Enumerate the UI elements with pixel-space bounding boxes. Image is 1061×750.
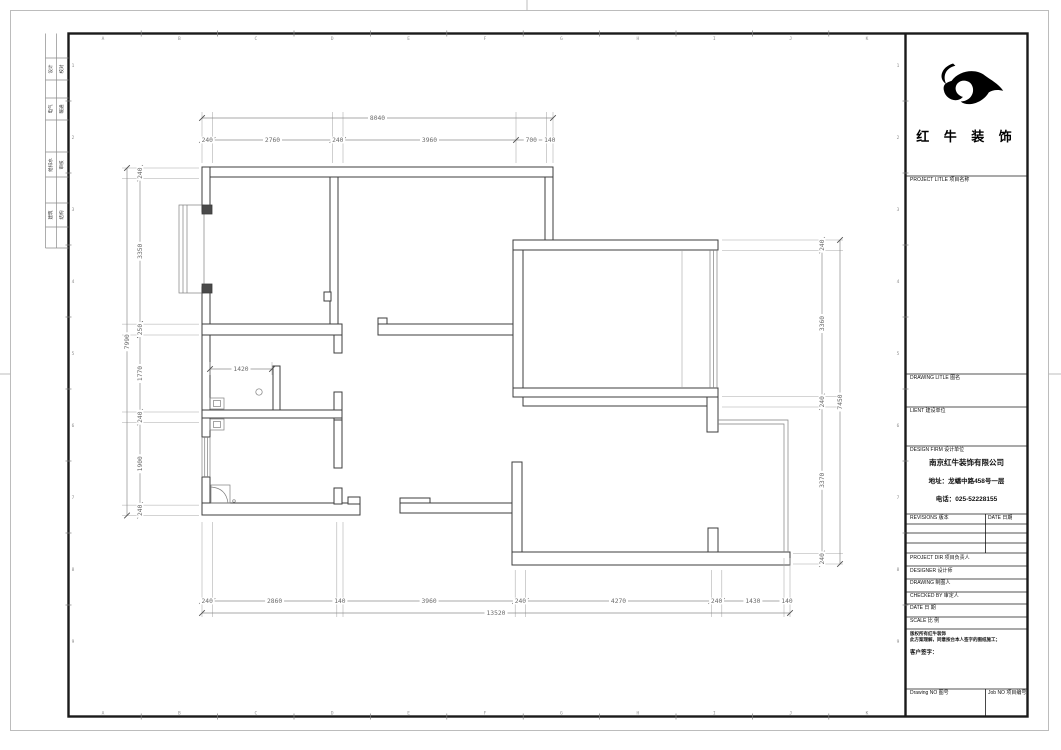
wall-hall-top xyxy=(378,324,513,335)
wall-br-room-top xyxy=(523,397,707,406)
grid-ref-letter: E xyxy=(407,36,410,42)
dim-label: 240 xyxy=(202,137,214,144)
grid-ref-number: 7 xyxy=(72,495,75,501)
dim-label: 8040 xyxy=(370,115,385,122)
grid-ref-letter: I xyxy=(713,711,716,717)
grid-ref-letter: H xyxy=(636,36,639,42)
floor-drain xyxy=(256,389,262,395)
checked-by-label: CHECKED BY 审定人 xyxy=(910,594,959,600)
dim-label: 250 xyxy=(137,324,144,336)
grid-ref-letter: B xyxy=(178,36,181,42)
wall-bath-stub xyxy=(273,366,280,410)
wall-right-room-bottom xyxy=(513,388,718,397)
floor-plan xyxy=(179,167,790,565)
dim-label: 140 xyxy=(544,137,556,144)
wall-left-lower xyxy=(202,332,210,437)
grid-ref-number: 7 xyxy=(897,495,900,501)
grid-ref-letter: G xyxy=(560,36,563,42)
wall-step xyxy=(348,497,360,504)
wall-bath-right-a xyxy=(334,335,342,353)
wall-left-below-window xyxy=(202,477,210,505)
revisions-label: REVISIONS 版本 xyxy=(910,516,949,522)
signoff-check: 校对 xyxy=(58,61,66,77)
signoff-electric: 电气 xyxy=(47,101,55,117)
signoff-review: 审核 xyxy=(58,157,66,173)
scale-label: SCALE 比 例 xyxy=(910,619,939,625)
wall-connector-right xyxy=(545,177,553,240)
grid-ref-number: 1 xyxy=(897,63,900,69)
wall-room-divider xyxy=(330,177,338,335)
dim-label: 3960 xyxy=(422,598,437,605)
grid-ref-letter: B xyxy=(178,711,181,717)
sheet-outer-border xyxy=(0,0,1061,731)
dim-label: 240 xyxy=(711,598,723,605)
drawing-title-label: DRAWING LITLE 图名 xyxy=(910,376,960,382)
grid-ref-number: 5 xyxy=(72,351,75,357)
dim-label: 1430 xyxy=(745,598,760,605)
dim-label: 140 xyxy=(781,598,793,605)
grid-ref-number: 4 xyxy=(897,279,900,285)
dim-label: 140 xyxy=(334,598,346,605)
wall-kitchen-bottom xyxy=(202,503,360,515)
designer-label: DESIGNER 设计师 xyxy=(910,569,953,575)
grid-ref-number: 6 xyxy=(897,423,900,429)
signoff-design: 设计 xyxy=(47,61,55,77)
project-dir-label: PROJECT DIR 项目负责人 xyxy=(910,556,970,562)
grid-ref-letter: J xyxy=(789,36,792,42)
grid-ref-letter: D xyxy=(331,711,334,717)
wall-hall-vertical xyxy=(512,462,522,565)
dim-label: 240 xyxy=(819,396,826,408)
grid-ref-number: 9 xyxy=(72,639,75,645)
wall-entry xyxy=(400,503,513,513)
grid-ref-number: 4 xyxy=(72,279,75,285)
drawing-sheet: { "sheet": { "grid_letters": ["A","B","C… xyxy=(0,0,1061,750)
grid-ref-letter: F xyxy=(484,711,487,717)
window-left xyxy=(202,437,210,477)
customer-sign-label: 客户签字： xyxy=(910,650,938,656)
company-phone: 电话：025-52228155 xyxy=(905,496,1028,503)
wall-kitchen-right-a xyxy=(334,420,342,468)
grid-ref-letter: G xyxy=(560,711,563,717)
wall-notch-top xyxy=(707,397,718,432)
grid-ref-letter: K xyxy=(866,711,869,717)
dim-label: 1900 xyxy=(137,456,144,471)
dim-label: 4270 xyxy=(611,598,626,605)
signoff-plumbing: 给排水 xyxy=(47,157,55,173)
dim-label: 700 xyxy=(526,137,538,144)
dim-label: 240 xyxy=(137,411,144,423)
dim-label: 240 xyxy=(819,239,826,251)
grid-ref-letter: C xyxy=(254,36,257,42)
kitchen-sink xyxy=(211,485,235,503)
wall-bath-top xyxy=(202,324,342,335)
grid-ref-number: 2 xyxy=(897,135,900,141)
dim-label: 240 xyxy=(202,598,214,605)
grid-ref-letter: H xyxy=(636,711,639,717)
grid-ref-number: 9 xyxy=(897,639,900,645)
grid-ref-letter: C xyxy=(254,711,257,717)
dim-label: 7990 xyxy=(124,334,131,349)
dim-label: 1770 xyxy=(137,366,144,381)
dim-label: 3350 xyxy=(137,243,144,258)
grid-ref-letter: I xyxy=(713,36,716,42)
grid-ref-number: 1 xyxy=(72,63,75,69)
dim-label: 3360 xyxy=(819,316,826,331)
grid-ref-number: 8 xyxy=(72,567,75,573)
dim-label: 240 xyxy=(819,553,826,565)
grid-ref-number: 2 xyxy=(72,135,75,141)
sheet-linework: AABBCCDDEEFFGGHHIIJJKK112233445566778899 xyxy=(0,0,1061,750)
wall-top-right-room xyxy=(513,240,718,250)
signoff-arch: 建筑 xyxy=(47,207,55,223)
dim-label: 240 xyxy=(515,598,527,605)
dim-label: 13520 xyxy=(487,610,506,617)
copyright-line2: 此方案理解，同意按台本人签字的图纸施工； xyxy=(910,638,1000,643)
client-label: LIENT 建设单位 xyxy=(910,409,945,415)
date-label: DATE 日 期 xyxy=(910,606,936,612)
job-no-label: Job NO 项目编号 xyxy=(988,691,1026,697)
grid-ref-letter: A xyxy=(102,711,105,717)
grid-ref-letter: K xyxy=(866,36,869,42)
grid-ref-number: 5 xyxy=(897,351,900,357)
grid-ref-number: 8 xyxy=(897,567,900,573)
dim-label: 240 xyxy=(137,504,144,516)
grid-ref-letter: D xyxy=(331,36,334,42)
wall-kitchen-right-b xyxy=(334,488,342,504)
wall-small-step xyxy=(324,292,331,301)
revisions-date-label: DATE 日期 xyxy=(988,516,1012,522)
signoff-structure: 结构 xyxy=(58,207,66,223)
company-address: 地址：龙蟠中路458号一层 xyxy=(905,478,1028,485)
dim-label: 2860 xyxy=(267,598,282,605)
grid-ref-number: 3 xyxy=(897,207,900,213)
drawing-no-label: Drawing NO 图号 xyxy=(910,691,949,697)
dim-label: 2760 xyxy=(265,137,280,144)
dim-label: 240 xyxy=(332,137,344,144)
project-title-label: PROJECT LITLE 项目名称 xyxy=(910,178,969,184)
window-right-room xyxy=(682,250,717,388)
design-firm-label: DESIGN FIRM 设计单位 xyxy=(910,448,964,454)
bay-window-bottom-right xyxy=(718,420,788,552)
dim-label: 3960 xyxy=(422,137,437,144)
grid-ref-number: 3 xyxy=(72,207,75,213)
wall-top xyxy=(202,167,553,177)
grid-ref-letter: J xyxy=(789,711,792,717)
wall-bath-kitchen-divider xyxy=(202,410,342,418)
dim-label: 240 xyxy=(137,167,144,179)
copyright-line1: 版权所有红牛装饰 xyxy=(910,632,946,637)
redbull-logo-icon xyxy=(928,60,1004,114)
brand-name: 红 牛 装 饰 xyxy=(905,126,1028,145)
dim-label: 3370 xyxy=(819,473,826,488)
signoff-hvac: 暖通 xyxy=(58,101,66,117)
grid-ref-letter: E xyxy=(407,711,410,717)
wall-right-room-left xyxy=(513,250,523,397)
grid-ref-letter: F xyxy=(484,36,487,42)
dimension-chains: 2402760240396070014080402402860140396024… xyxy=(122,112,844,617)
dim-label: 7450 xyxy=(837,394,844,409)
balcony-bay-window xyxy=(179,205,212,293)
dim-label: 1420 xyxy=(233,366,248,373)
drawing-label: DRAWING 制图人 xyxy=(910,581,950,587)
grid-ref-number: 6 xyxy=(72,423,75,429)
grid-ref-letter: A xyxy=(102,36,105,42)
wall-notch-bottom xyxy=(708,528,718,552)
wall-bottom xyxy=(512,552,790,565)
company-name: 南京红牛装饰有限公司 xyxy=(905,459,1028,467)
